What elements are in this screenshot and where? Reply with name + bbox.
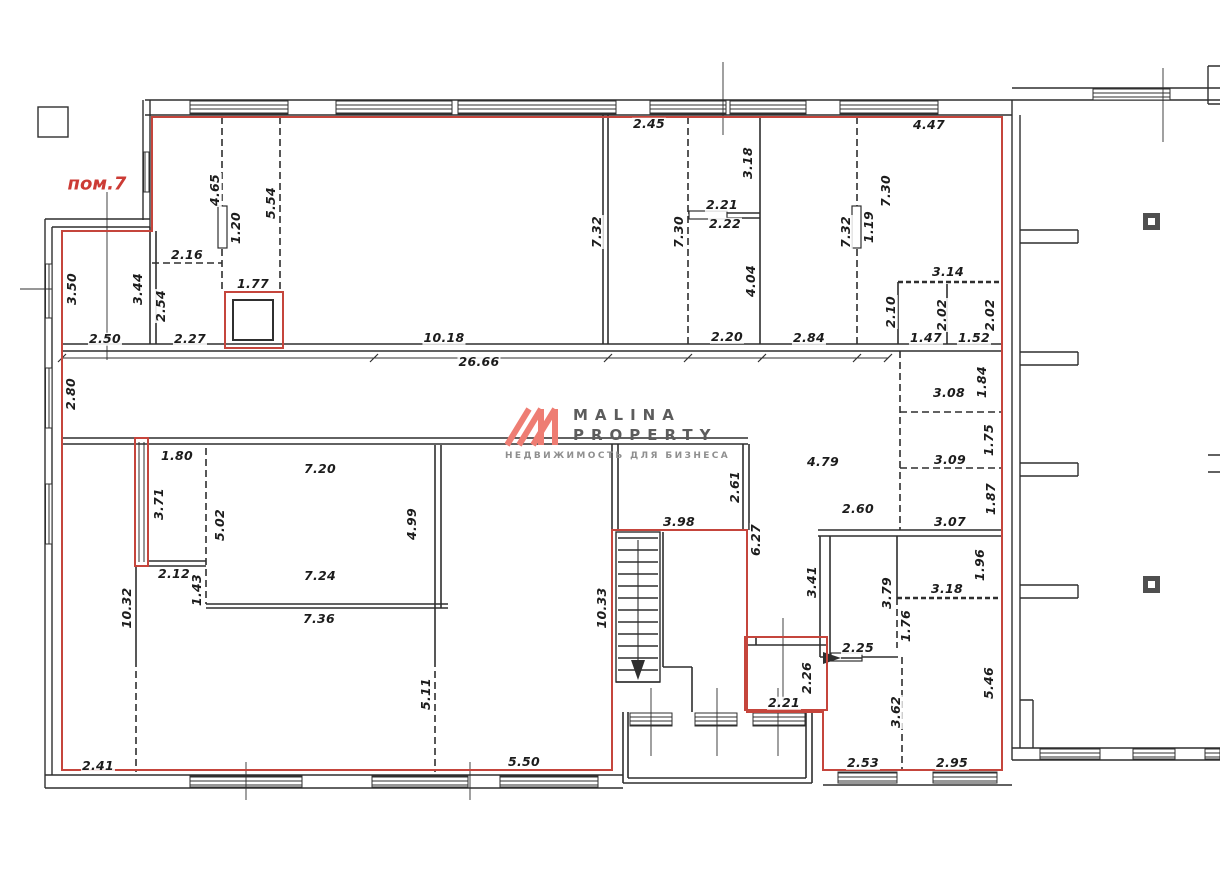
dimension-label: 3.18 — [930, 583, 964, 596]
dimension-label: 3.18 — [742, 146, 755, 180]
dimension-label: 2.02 — [936, 298, 949, 332]
dimension-label: 1.76 — [900, 609, 913, 643]
dimension-label: 2.41 — [81, 760, 115, 773]
dimension-label: 5.02 — [214, 508, 227, 542]
dimension-label: 2.02 — [984, 298, 997, 332]
dimension-label: 1.96 — [974, 548, 987, 582]
watermark-logo: MALINA PROPERTY НЕДВИЖИМОСТЬ ДЛЯ БИЗНЕСА — [505, 401, 725, 465]
logo-tagline: НЕДВИЖИМОСТЬ ДЛЯ БИЗНЕСА — [505, 451, 730, 461]
dimension-label: 10.33 — [596, 586, 609, 629]
dimension-label: 7.24 — [303, 570, 337, 583]
dimension-label: 7.30 — [673, 215, 686, 249]
dimension-label: 6.27 — [750, 523, 763, 557]
dimension-label: 2.16 — [170, 249, 204, 262]
dimension-label: 26.66 — [457, 356, 500, 369]
dimension-label: 5.54 — [265, 186, 278, 220]
dimension-label: 2.45 — [632, 118, 666, 131]
dimension-label: 2.84 — [792, 332, 826, 345]
dimension-label: 7.36 — [302, 613, 336, 626]
dimension-label: 1.80 — [160, 450, 194, 463]
dimension-label: 1.77 — [236, 278, 270, 291]
dimension-label: 5.46 — [983, 666, 996, 700]
dimension-label: 1.84 — [976, 365, 989, 399]
dimension-label: 2.12 — [157, 568, 191, 581]
column-marker — [38, 107, 68, 137]
dimension-label: 7.32 — [591, 215, 604, 249]
dimension-label: 5.11 — [420, 677, 433, 711]
dimension-label: 1.19 — [863, 210, 876, 244]
dimension-label: 2.26 — [801, 661, 814, 695]
staircase — [616, 532, 660, 682]
dimension-label: 2.60 — [841, 503, 875, 516]
dimension-label: 4.65 — [209, 173, 222, 207]
dimension-label: 2.27 — [173, 333, 207, 346]
dimension-label: 2.22 — [708, 218, 742, 231]
dimension-label: 10.18 — [422, 332, 465, 345]
dimension-label: 3.98 — [662, 516, 696, 529]
dimension-label: 7.20 — [303, 463, 337, 476]
dimension-label: 3.09 — [933, 454, 967, 467]
dimension-label: 7.30 — [880, 174, 893, 208]
dimension-label: 3.62 — [890, 695, 903, 729]
dimension-label: 3.44 — [132, 272, 145, 306]
dimension-label: 1.47 — [909, 332, 943, 345]
dimension-label: 2.21 — [705, 199, 739, 212]
premises-label: пом.7 — [68, 174, 127, 195]
dimension-label: 2.61 — [729, 470, 742, 504]
dimension-label: 3.79 — [881, 576, 894, 610]
logo-title-line2: PROPERTY — [573, 427, 718, 444]
dimension-label: 3.08 — [932, 387, 966, 400]
dimension-label: 7.32 — [840, 215, 853, 249]
dimension-label: 4.99 — [406, 507, 419, 541]
dimension-label: 3.07 — [933, 516, 967, 529]
dimension-label: 2.10 — [885, 295, 898, 329]
dimension-label: 1.43 — [191, 573, 204, 607]
dimension-label: 1.52 — [957, 332, 991, 345]
dimension-label: 1.20 — [230, 211, 243, 245]
dimension-label: 4.04 — [745, 264, 758, 298]
dimension-label: 2.25 — [841, 642, 875, 655]
dimension-label: 10.32 — [121, 586, 134, 629]
malina-logo-icon — [505, 401, 563, 447]
dimension-label: 1.87 — [985, 482, 998, 516]
dimension-label: 2.95 — [935, 757, 969, 770]
dimension-label: 2.50 — [88, 333, 122, 346]
dimension-label: 4.47 — [912, 119, 946, 132]
logo-title-line1: MALINA — [573, 407, 718, 424]
structural-columns — [1143, 213, 1160, 593]
dimension-label: 2.20 — [710, 331, 744, 344]
dimension-label: 3.41 — [806, 565, 819, 599]
dimension-label: 3.71 — [153, 487, 166, 521]
dimension-label: 3.14 — [931, 266, 965, 279]
dimension-label: 5.50 — [507, 756, 541, 769]
dimension-label: 2.53 — [846, 757, 880, 770]
dimension-label: 1.75 — [983, 423, 996, 457]
dimension-label: 4.79 — [806, 456, 840, 469]
red-duct-outline — [135, 438, 148, 566]
dimension-label: 2.54 — [155, 289, 168, 323]
dimension-label: 2.21 — [767, 697, 801, 710]
dimension-label: 3.50 — [66, 272, 79, 306]
dimension-label: 2.80 — [65, 377, 78, 411]
floor-plan-canvas: пом.7 MALINA PROPERTY НЕДВИЖИМОСТЬ ДЛЯ Б… — [0, 0, 1220, 878]
